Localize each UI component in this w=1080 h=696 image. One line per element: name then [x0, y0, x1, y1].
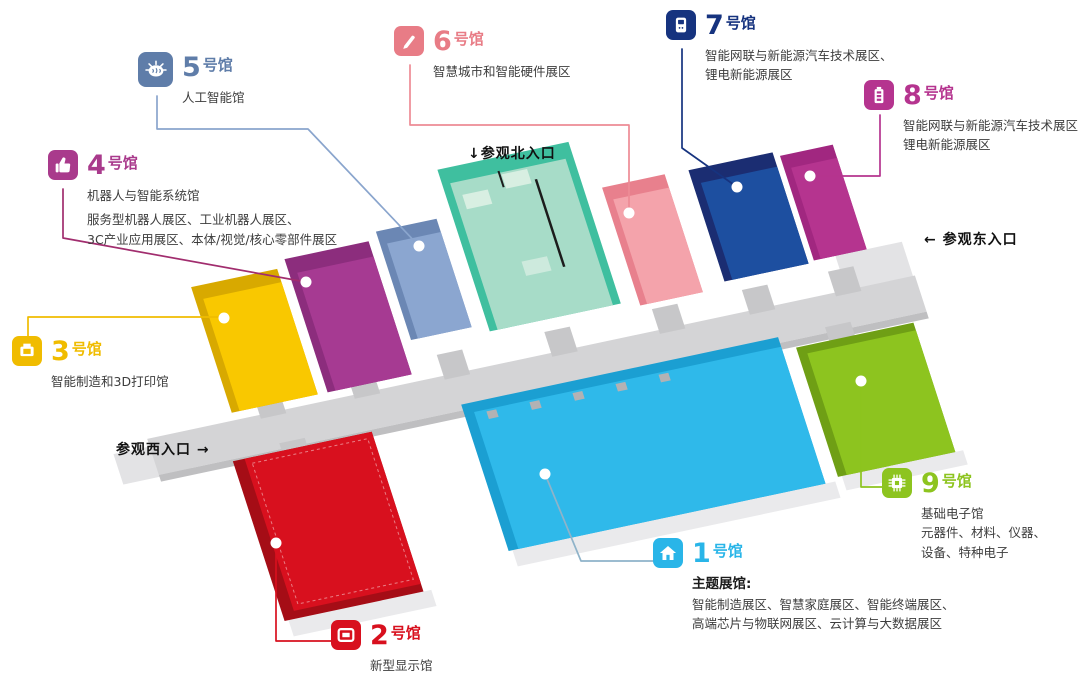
- east-entrance-label: ← 参观东入口: [924, 229, 1018, 249]
- hall-9-desc: 设备、特种电子: [921, 543, 1046, 562]
- hall-1-desc: 智能制造展区、智慧家庭展区、智能终端展区、: [692, 595, 955, 614]
- hall-8-title: 8号馆: [903, 82, 1078, 109]
- hall-7-marker: [732, 182, 743, 193]
- hall-2-label: 2号馆 新型显示馆: [331, 620, 433, 675]
- display-icon: [331, 620, 361, 650]
- north-entrance-hall-shape: [437, 142, 620, 332]
- hall-9-shape: [796, 323, 955, 477]
- pen-icon: [394, 26, 424, 56]
- hall-9-desc: 基础电子馆: [921, 504, 1046, 523]
- hall-1-desc: 主题展馆:: [692, 574, 955, 595]
- hall-2-shape: [233, 432, 424, 621]
- charging-station-icon: [666, 10, 696, 40]
- printer-3d-icon: [12, 336, 42, 366]
- hall-3-label: 3号馆 智能制造和3D打印馆: [12, 336, 169, 391]
- hall-3-desc: 智能制造和3D打印馆: [51, 372, 169, 391]
- hall-9-label: 9号馆 基础电子馆 元器件、材料、仪器、 设备、特种电子: [882, 468, 1046, 562]
- hand-icon: [48, 150, 78, 180]
- hall-2-desc: 新型显示馆: [370, 656, 433, 675]
- hall-1-desc: 高端芯片与物联网展区、云计算与大数据展区: [692, 614, 955, 633]
- brain-icon: [138, 52, 173, 87]
- hall-6-marker: [624, 208, 635, 219]
- hall-7-title: 7号馆: [705, 12, 893, 39]
- expo-floor-map: ↓参观北入口 ← 参观东入口 参观西入口 → 5号馆 人工智能馆 6号馆 智慧城…: [0, 0, 1080, 696]
- hall-5-marker: [414, 241, 425, 252]
- hall-5-title: 5号馆: [182, 54, 245, 81]
- west-entrance-label: 参观西入口 →: [116, 439, 210, 459]
- hall-8-marker: [805, 171, 816, 182]
- hall-3-title: 3号馆: [51, 338, 169, 365]
- hall-8-desc: 锂电新能源展区: [903, 135, 1078, 154]
- hall-4-label: 4号馆 机器人与智能系统馆 服务型机器人展区、工业机器人展区、 3C产业应用展区…: [48, 150, 337, 249]
- hall-4-marker: [301, 277, 312, 288]
- hall-4-desc: 服务型机器人展区、工业机器人展区、: [87, 210, 337, 229]
- hall-1-marker: [540, 469, 551, 480]
- hall-6-desc: 智慧城市和智能硬件展区: [433, 62, 571, 81]
- hall-2-marker: [271, 538, 282, 549]
- hall-6-shape: [602, 174, 703, 305]
- chip-icon: [882, 468, 912, 498]
- hall-4-desc: 3C产业应用展区、本体/视觉/核心零部件展区: [87, 230, 337, 249]
- hall-8-desc: 智能网联与新能源汽车技术展区: [903, 116, 1078, 135]
- hall-9-desc: 元器件、材料、仪器、: [921, 523, 1046, 542]
- hall-5-label: 5号馆 人工智能馆: [138, 52, 245, 107]
- hall-4-title: 4号馆: [87, 152, 337, 179]
- hall-2-title: 2号馆: [370, 622, 433, 649]
- hall-4-desc: 机器人与智能系统馆: [87, 186, 337, 205]
- north-entrance-label: ↓参观北入口: [468, 143, 556, 163]
- hall-9-title: 9号馆: [921, 470, 1046, 497]
- battery-icon: [864, 80, 894, 110]
- home-icon: [653, 538, 683, 568]
- hall-3-marker: [219, 313, 230, 324]
- hall-6-label: 6号馆 智慧城市和智能硬件展区: [394, 26, 571, 81]
- hall-8-label: 8号馆 智能网联与新能源汽车技术展区 锂电新能源展区: [864, 80, 1078, 155]
- hall-9-marker: [856, 376, 867, 387]
- hall-7-desc: 智能网联与新能源汽车技术展区、: [705, 46, 893, 65]
- hall-5-desc: 人工智能馆: [182, 88, 245, 107]
- hall-7-label: 7号馆 智能网联与新能源汽车技术展区、 锂电新能源展区: [666, 10, 893, 85]
- hall-6-title: 6号馆: [433, 28, 571, 55]
